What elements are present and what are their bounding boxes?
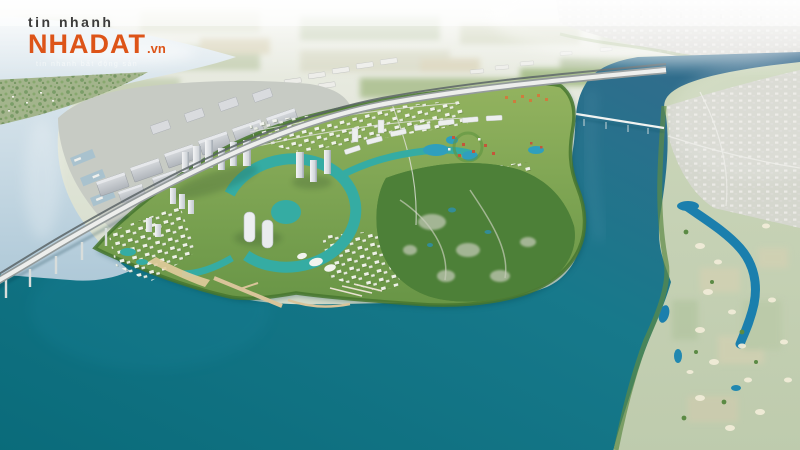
- central-lagoon: [271, 200, 301, 224]
- aerial-render-screenshot: tin nhanh NHADAT.vn tin nhanh bất động s…: [0, 0, 800, 450]
- forest-reserve: [376, 163, 574, 302]
- masterplan-aerial-view: [0, 0, 800, 450]
